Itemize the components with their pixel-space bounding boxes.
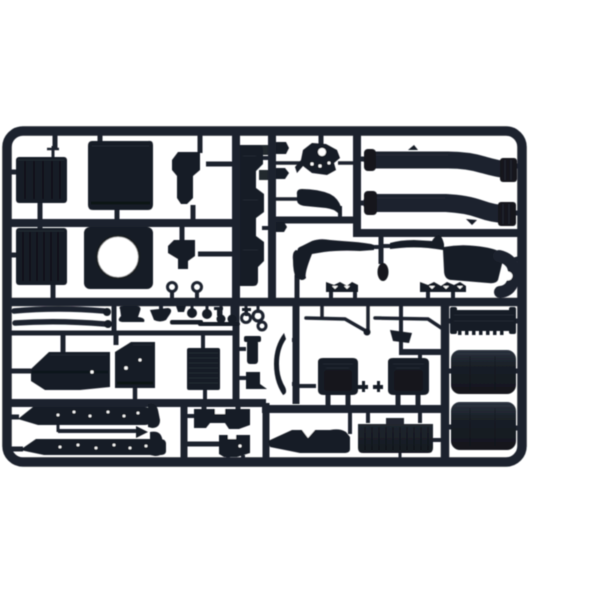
sprue-photo bbox=[0, 0, 600, 600]
part-fender-blade bbox=[274, 333, 286, 395]
part-gearbox-block bbox=[194, 409, 250, 429]
part-fuel-tank-2 bbox=[451, 402, 516, 450]
part-shift-lever bbox=[390, 330, 412, 343]
part-seat-base-right bbox=[388, 358, 429, 395]
part-chassis-rail-2 bbox=[20, 432, 166, 456]
part-seat-base-left bbox=[318, 358, 358, 395]
part-exhaust-pipe-lower bbox=[364, 191, 516, 226]
part-sun-visor bbox=[297, 189, 342, 215]
part-engine-block bbox=[115, 342, 155, 388]
part-leaf-springs bbox=[14, 308, 112, 328]
photo-stage: Black plastic model kit sprue with truck… bbox=[0, 0, 600, 600]
part-engine-detail bbox=[295, 143, 340, 175]
part-chassis-fender-left bbox=[293, 239, 374, 292]
part-chassis-fender-right bbox=[390, 235, 521, 292]
part-ring-pins-upper bbox=[168, 283, 202, 292]
part-small-fittings bbox=[119, 306, 266, 330]
part-chassis-rail-1 bbox=[18, 404, 160, 428]
part-exhaust-pipe-upper bbox=[364, 145, 517, 182]
part-transfer-case bbox=[219, 435, 250, 457]
part-wheel-hub bbox=[378, 263, 389, 281]
part-cab-rear-panel bbox=[358, 418, 433, 453]
part-cab-roof-panel bbox=[88, 141, 153, 210]
part-radiator-grille-lower bbox=[16, 228, 67, 285]
part-stack-bracket bbox=[244, 336, 267, 389]
part-radiator-core bbox=[187, 348, 220, 390]
part-drive-shaft bbox=[58, 425, 148, 438]
part-battery-box bbox=[31, 352, 110, 390]
part-mud-flap bbox=[268, 429, 350, 453]
part-fan-shroud bbox=[84, 227, 153, 289]
part-seat-connectors bbox=[358, 381, 383, 392]
part-intake-grille-bar bbox=[450, 307, 516, 335]
part-front-bumper bbox=[240, 145, 264, 286]
part-radiator-grille-upper bbox=[16, 146, 67, 203]
part-step-bracket-lower bbox=[168, 240, 195, 269]
part-step-bracket-upper bbox=[172, 152, 200, 204]
part-fuel-tank-1 bbox=[451, 350, 516, 394]
part-wiper-arms bbox=[306, 318, 447, 336]
